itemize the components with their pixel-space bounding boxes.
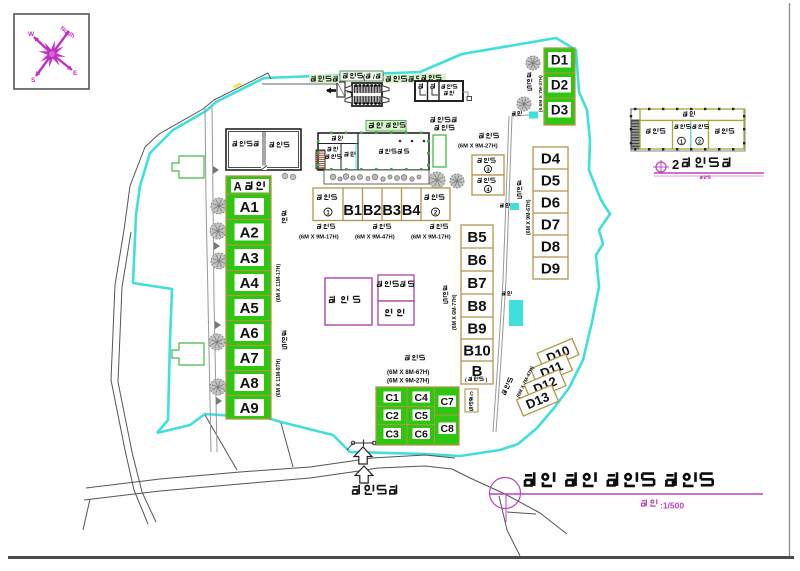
svg-text:D8: D8 — [541, 238, 560, 255]
svg-text:A4: A4 — [240, 275, 260, 292]
svg-text:A5: A5 — [240, 300, 259, 317]
svg-text:B7: B7 — [467, 275, 486, 292]
svg-text:D9: D9 — [541, 260, 560, 277]
svg-text:A6: A6 — [240, 325, 259, 342]
svg-text::1/500: :1/500 — [660, 501, 684, 511]
svg-text:(6.6M X 7M-37H): (6.6M X 7M-37H) — [538, 75, 544, 112]
svg-text:D1: D1 — [551, 53, 569, 68]
svg-text:(6M X 9M-47H): (6M X 9M-47H) — [355, 235, 395, 241]
svg-text:C1: C1 — [385, 392, 399, 404]
svg-text:/: / — [373, 74, 375, 81]
svg-text:(6M X 9M-27H): (6M X 9M-27H) — [387, 378, 429, 385]
svg-text:C4: C4 — [414, 392, 428, 404]
svg-text:C8: C8 — [440, 423, 454, 435]
svg-text:2: 2 — [698, 140, 701, 146]
svg-text:D7: D7 — [541, 216, 560, 233]
svg-text:B10: B10 — [463, 342, 491, 359]
svg-text:2: 2 — [672, 157, 679, 172]
svg-text:A: A — [234, 182, 242, 194]
svg-text:B8: B8 — [467, 298, 486, 315]
svg-text:C7: C7 — [440, 396, 454, 408]
svg-text:B: B — [472, 363, 483, 380]
svg-text:S: S — [31, 77, 36, 84]
svg-text:A1: A1 — [240, 199, 259, 216]
svg-text:B9: B9 — [467, 320, 486, 337]
svg-text:(6M X 11M-97H): (6M X 11M-97H) — [276, 359, 282, 397]
svg-text:1: 1 — [680, 140, 683, 146]
svg-text:A3: A3 — [240, 250, 259, 267]
svg-text:C3: C3 — [385, 428, 399, 440]
svg-text:D4: D4 — [541, 150, 561, 167]
svg-text:B4: B4 — [402, 203, 421, 219]
svg-text:B3: B3 — [382, 203, 401, 219]
svg-text:E: E — [73, 70, 78, 77]
svg-text:C2: C2 — [385, 410, 399, 422]
svg-text:D5: D5 — [541, 172, 560, 189]
svg-text:A2: A2 — [240, 224, 259, 241]
svg-text:(6M X 9M-17H): (6M X 9M-17H) — [411, 235, 451, 241]
svg-text:A8: A8 — [240, 375, 259, 392]
svg-text:B6: B6 — [467, 252, 486, 269]
svg-text:A7: A7 — [240, 350, 259, 367]
svg-text:D3: D3 — [551, 103, 569, 118]
svg-text:3: 3 — [486, 167, 489, 173]
svg-text:D6: D6 — [541, 194, 560, 211]
svg-text:(6M X 8M-67H): (6M X 8M-67H) — [387, 369, 429, 376]
svg-text:B2: B2 — [363, 203, 382, 219]
svg-text:D2: D2 — [551, 78, 568, 93]
svg-text:C5: C5 — [414, 410, 428, 422]
svg-text:(6M X 11M-17H): (6M X 11M-17H) — [276, 264, 282, 302]
svg-text:C6: C6 — [414, 428, 428, 440]
svg-text:B5: B5 — [467, 229, 486, 246]
svg-text:A9: A9 — [240, 400, 259, 417]
svg-text:B1: B1 — [343, 203, 362, 219]
svg-text:(6M X 9M-27H): (6M X 9M-27H) — [458, 144, 498, 150]
svg-text:(6M X 9M-67H): (6M X 9M-67H) — [526, 199, 532, 235]
svg-text:W: W — [28, 31, 35, 38]
svg-text:(6M X 6M-77H): (6M X 6M-77H) — [452, 294, 458, 330]
svg-text:(6M X 9M-17H): (6M X 9M-17H) — [299, 235, 339, 241]
